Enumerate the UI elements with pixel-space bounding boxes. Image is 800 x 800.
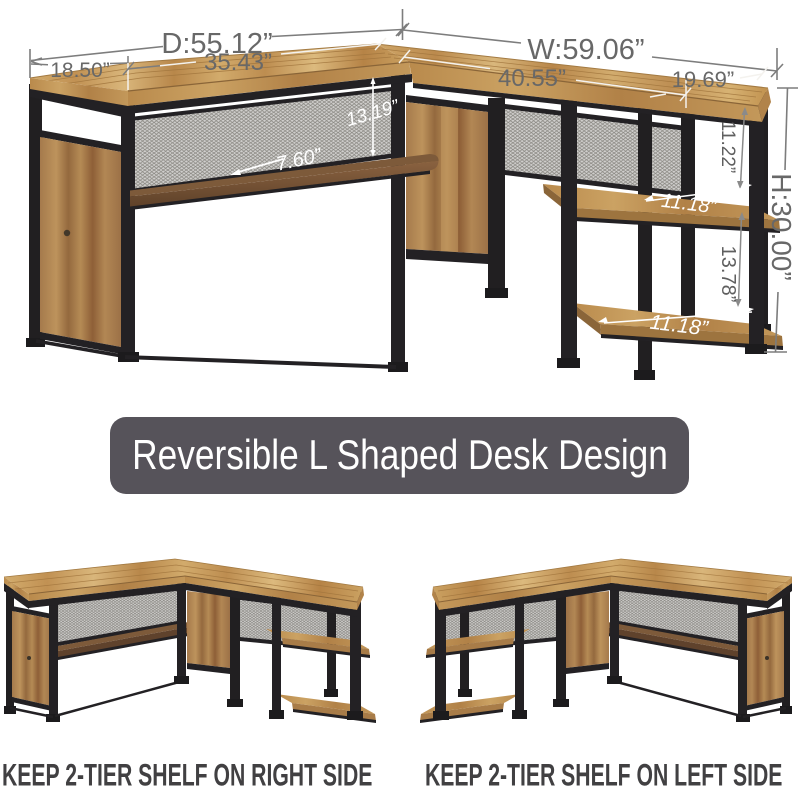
svg-text:11.22”: 11.22” <box>717 121 738 173</box>
svg-text:Reversible L Shaped Desk Desig: Reversible L Shaped Desk Design <box>132 432 668 479</box>
svg-text:KEEP 2-TIER SHELF ON LEFT SIDE: KEEP 2-TIER SHELF ON LEFT SIDE <box>425 757 782 792</box>
svg-text:13.78”: 13.78” <box>717 246 739 303</box>
svg-text:40.55”: 40.55” <box>498 65 566 92</box>
svg-text:19.69”: 19.69” <box>672 67 734 92</box>
svg-text:W:59.06”: W:59.06” <box>527 34 644 66</box>
svg-text:KEEP 2-TIER SHELF ON RIGHT SID: KEEP 2-TIER SHELF ON RIGHT SIDE <box>2 757 372 792</box>
svg-text:35.43”: 35.43” <box>204 49 272 76</box>
svg-text:H:30.00”: H:30.00” <box>766 173 797 280</box>
svg-text:18.50”: 18.50” <box>50 59 110 82</box>
